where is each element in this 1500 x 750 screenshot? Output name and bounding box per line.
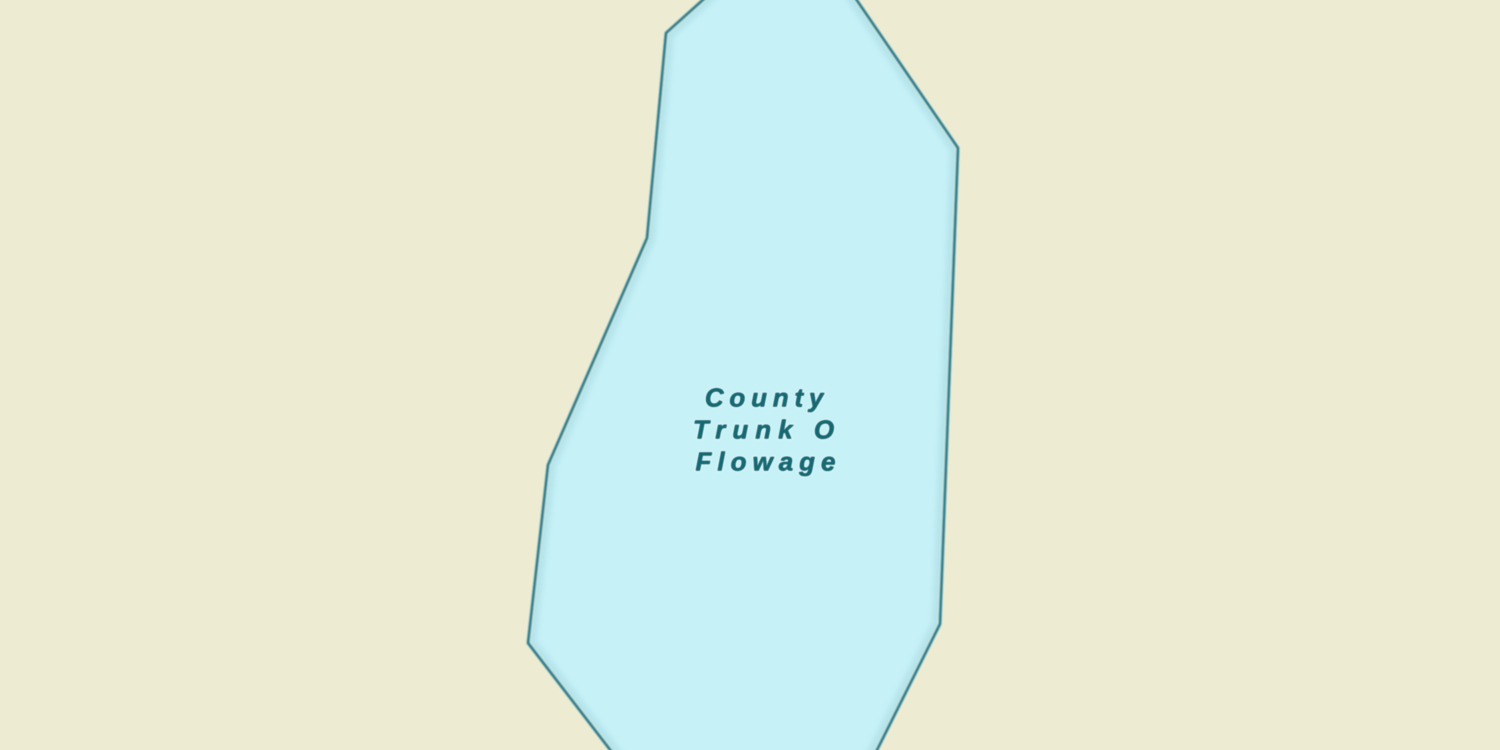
svg-text:County: County: [705, 383, 829, 413]
svg-text:Flowage: Flowage: [695, 446, 841, 476]
svg-text:Trunk O: Trunk O: [693, 415, 841, 445]
